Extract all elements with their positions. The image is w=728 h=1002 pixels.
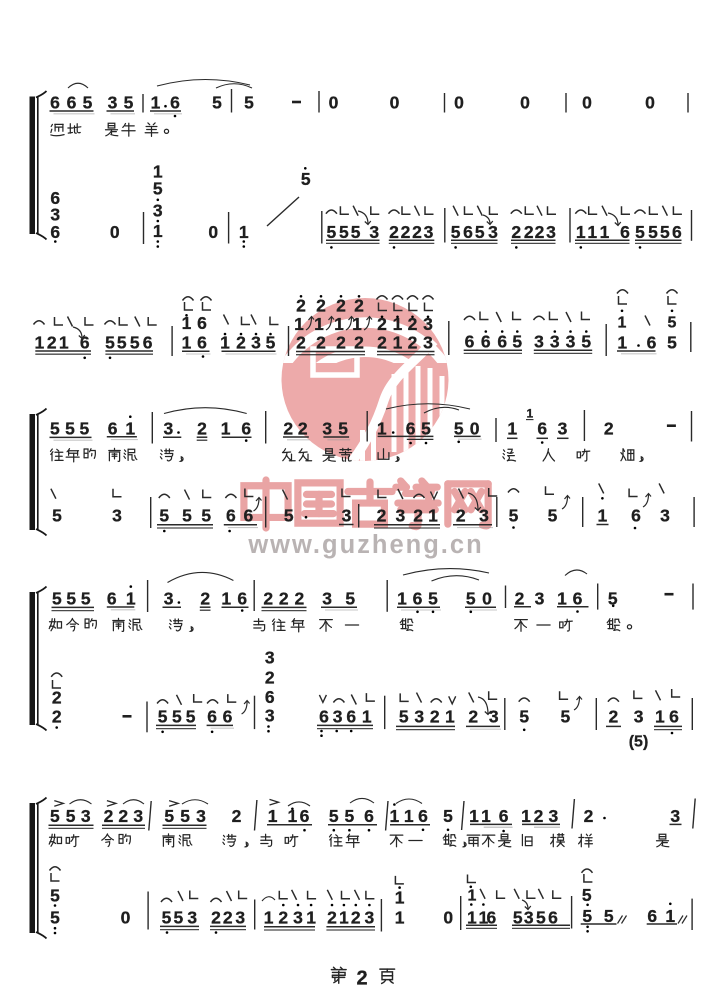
svg-text:5: 5 bbox=[174, 908, 184, 928]
svg-text:1: 1 bbox=[598, 506, 608, 526]
svg-text:1: 1 bbox=[428, 506, 438, 526]
svg-text:1: 1 bbox=[655, 707, 665, 727]
svg-text:1: 1 bbox=[395, 908, 405, 928]
svg-text:2: 2 bbox=[408, 333, 418, 353]
svg-text:5: 5 bbox=[648, 222, 658, 242]
svg-text:1: 1 bbox=[507, 419, 517, 439]
svg-text:3: 3 bbox=[566, 332, 576, 352]
svg-text:1: 1 bbox=[125, 419, 135, 439]
svg-text:0: 0 bbox=[482, 589, 492, 609]
svg-text:1: 1 bbox=[393, 333, 403, 353]
svg-text:3: 3 bbox=[546, 222, 556, 242]
svg-text:1: 1 bbox=[221, 419, 231, 439]
svg-text:1: 1 bbox=[445, 707, 455, 727]
svg-text:3: 3 bbox=[196, 806, 206, 826]
svg-text:5: 5 bbox=[80, 419, 90, 439]
svg-text:2: 2 bbox=[295, 589, 305, 609]
svg-text:0: 0 bbox=[208, 222, 218, 242]
svg-text:3: 3 bbox=[535, 589, 545, 609]
svg-text:1: 1 bbox=[59, 333, 69, 353]
svg-text:1: 1 bbox=[151, 93, 161, 113]
svg-text:3: 3 bbox=[333, 707, 343, 727]
svg-text:3: 3 bbox=[424, 222, 434, 242]
svg-text:6: 6 bbox=[631, 506, 641, 526]
svg-text:5: 5 bbox=[509, 506, 519, 526]
svg-text:5: 5 bbox=[244, 93, 254, 113]
svg-text:6: 6 bbox=[463, 222, 473, 242]
svg-text:2: 2 bbox=[283, 419, 293, 439]
svg-text:5: 5 bbox=[105, 333, 115, 353]
svg-text:3: 3 bbox=[265, 706, 275, 726]
svg-text:6: 6 bbox=[50, 222, 60, 242]
svg-text:2: 2 bbox=[47, 333, 57, 353]
svg-text:2: 2 bbox=[511, 222, 521, 242]
svg-text:1: 1 bbox=[617, 333, 627, 353]
svg-text:5: 5 bbox=[548, 506, 558, 526]
svg-text:6: 6 bbox=[497, 332, 507, 352]
svg-text:0: 0 bbox=[582, 93, 592, 113]
svg-text:1: 1 bbox=[377, 419, 387, 439]
svg-text:3: 3 bbox=[489, 707, 499, 727]
svg-text:6: 6 bbox=[418, 806, 428, 826]
svg-text:5: 5 bbox=[212, 93, 222, 113]
svg-text:3: 3 bbox=[342, 506, 352, 526]
svg-text:5: 5 bbox=[50, 419, 60, 439]
svg-text:2: 2 bbox=[336, 333, 346, 353]
svg-text:6: 6 bbox=[197, 313, 207, 333]
svg-text:1: 1 bbox=[288, 806, 298, 826]
svg-text:5: 5 bbox=[339, 222, 349, 242]
svg-text:6: 6 bbox=[413, 589, 423, 609]
svg-text:6: 6 bbox=[143, 333, 153, 353]
svg-text:5: 5 bbox=[158, 707, 168, 727]
svg-text:2: 2 bbox=[52, 707, 62, 727]
svg-text:6: 6 bbox=[197, 333, 207, 353]
svg-text:3: 3 bbox=[423, 333, 433, 353]
svg-text:6: 6 bbox=[481, 332, 491, 352]
svg-text:6: 6 bbox=[620, 222, 630, 242]
svg-text:5: 5 bbox=[466, 589, 476, 609]
svg-text:1: 1 bbox=[467, 887, 476, 904]
svg-text:1: 1 bbox=[557, 589, 567, 609]
svg-text:5: 5 bbox=[301, 169, 311, 189]
svg-text:2: 2 bbox=[401, 222, 411, 242]
svg-text:3: 3 bbox=[164, 589, 174, 609]
svg-text:5: 5 bbox=[284, 506, 294, 526]
svg-text:2: 2 bbox=[104, 806, 114, 826]
svg-text:1: 1 bbox=[153, 221, 163, 241]
svg-text:6: 6 bbox=[537, 419, 547, 439]
svg-text:2: 2 bbox=[279, 589, 289, 609]
svg-text:5: 5 bbox=[50, 886, 60, 906]
svg-text:1: 1 bbox=[221, 589, 231, 609]
svg-text:0: 0 bbox=[110, 222, 120, 242]
svg-text:3: 3 bbox=[133, 806, 143, 826]
svg-text:5: 5 bbox=[399, 707, 409, 727]
svg-text:2: 2 bbox=[389, 222, 399, 242]
svg-text:6: 6 bbox=[647, 906, 657, 926]
svg-text:6: 6 bbox=[406, 419, 416, 439]
svg-text:5: 5 bbox=[159, 506, 169, 526]
svg-text:6: 6 bbox=[647, 333, 657, 353]
svg-text:2: 2 bbox=[236, 333, 246, 353]
svg-text:1: 1 bbox=[397, 589, 407, 609]
svg-text:5: 5 bbox=[52, 506, 62, 526]
svg-text:6: 6 bbox=[170, 93, 180, 113]
svg-text:5: 5 bbox=[66, 806, 76, 826]
svg-text:3: 3 bbox=[81, 806, 91, 826]
svg-text:6: 6 bbox=[67, 93, 77, 113]
svg-text:2: 2 bbox=[430, 707, 440, 727]
svg-text:2: 2 bbox=[336, 296, 346, 316]
svg-text:5: 5 bbox=[338, 419, 348, 439]
svg-text:3: 3 bbox=[479, 506, 489, 526]
svg-text:3: 3 bbox=[558, 419, 568, 439]
svg-text:1: 1 bbox=[264, 908, 274, 928]
svg-text:3: 3 bbox=[396, 506, 406, 526]
svg-text:5: 5 bbox=[604, 906, 614, 926]
svg-text:1: 1 bbox=[521, 806, 531, 826]
svg-text:3: 3 bbox=[549, 806, 559, 826]
svg-text:2: 2 bbox=[356, 968, 367, 990]
svg-text:6: 6 bbox=[672, 222, 682, 242]
svg-text:6: 6 bbox=[364, 806, 374, 826]
svg-text:2: 2 bbox=[468, 707, 478, 727]
svg-text:2: 2 bbox=[296, 333, 306, 353]
svg-text:5: 5 bbox=[345, 589, 355, 609]
svg-text:2: 2 bbox=[604, 419, 614, 439]
svg-text:6: 6 bbox=[226, 506, 236, 526]
svg-text:3: 3 bbox=[322, 419, 332, 439]
svg-text:5: 5 bbox=[124, 93, 134, 113]
svg-text:3: 3 bbox=[265, 648, 275, 668]
svg-text:1: 1 bbox=[587, 222, 597, 242]
svg-text:5: 5 bbox=[186, 707, 196, 727]
svg-text:3: 3 bbox=[108, 93, 118, 113]
svg-text:1: 1 bbox=[618, 315, 627, 332]
svg-text:5: 5 bbox=[266, 333, 276, 353]
svg-text:5: 5 bbox=[581, 332, 591, 352]
svg-text:5: 5 bbox=[180, 806, 190, 826]
svg-text:2: 2 bbox=[327, 908, 337, 928]
svg-text:3: 3 bbox=[251, 333, 261, 353]
svg-text:3: 3 bbox=[369, 222, 379, 242]
svg-text:3: 3 bbox=[322, 589, 332, 609]
svg-text:2: 2 bbox=[316, 296, 326, 316]
svg-text:5: 5 bbox=[351, 222, 361, 242]
svg-text:5: 5 bbox=[201, 506, 211, 526]
svg-text:2: 2 bbox=[232, 806, 242, 826]
svg-text:5: 5 bbox=[66, 589, 76, 609]
svg-text:5: 5 bbox=[162, 908, 172, 928]
svg-text:3: 3 bbox=[660, 506, 670, 526]
svg-text:2: 2 bbox=[263, 589, 273, 609]
svg-text:6: 6 bbox=[107, 589, 117, 609]
svg-text:1: 1 bbox=[314, 314, 324, 334]
svg-text:5: 5 bbox=[582, 906, 592, 926]
svg-text:1: 1 bbox=[35, 333, 45, 353]
svg-text:3: 3 bbox=[153, 200, 163, 220]
svg-text:6: 6 bbox=[50, 93, 60, 113]
svg-text:5: 5 bbox=[660, 222, 670, 242]
svg-text:6: 6 bbox=[465, 332, 475, 352]
svg-text:1: 1 bbox=[352, 314, 362, 334]
svg-text:3: 3 bbox=[414, 707, 424, 727]
svg-text:1: 1 bbox=[576, 222, 586, 242]
svg-text:5: 5 bbox=[81, 589, 91, 609]
svg-text:5: 5 bbox=[451, 222, 461, 242]
svg-text:5: 5 bbox=[50, 908, 60, 928]
svg-text:6: 6 bbox=[108, 419, 118, 439]
svg-text:1: 1 bbox=[220, 333, 230, 353]
svg-text:2: 2 bbox=[298, 419, 308, 439]
svg-text:2: 2 bbox=[354, 296, 364, 316]
svg-text:5: 5 bbox=[182, 506, 192, 526]
svg-text:6: 6 bbox=[346, 707, 356, 727]
svg-text:2: 2 bbox=[515, 589, 525, 609]
svg-text:5: 5 bbox=[83, 93, 93, 113]
svg-text:0: 0 bbox=[645, 93, 655, 113]
svg-text:1: 1 bbox=[339, 908, 349, 928]
svg-text:1: 1 bbox=[268, 806, 278, 826]
svg-text:2: 2 bbox=[52, 688, 62, 708]
svg-text:1: 1 bbox=[395, 887, 405, 907]
svg-text:5: 5 bbox=[52, 589, 62, 609]
svg-text:0: 0 bbox=[454, 93, 464, 113]
svg-text:3: 3 bbox=[112, 506, 122, 526]
svg-text:2: 2 bbox=[412, 222, 422, 242]
svg-text:5: 5 bbox=[668, 315, 677, 332]
svg-text:5: 5 bbox=[443, 806, 453, 826]
svg-text:2: 2 bbox=[296, 296, 306, 316]
svg-text:5: 5 bbox=[667, 333, 677, 353]
svg-text:6: 6 bbox=[319, 707, 329, 727]
svg-text:1: 1 bbox=[469, 806, 479, 826]
svg-text:1: 1 bbox=[362, 707, 372, 727]
svg-text:5: 5 bbox=[428, 589, 438, 609]
svg-text:2: 2 bbox=[354, 333, 364, 353]
svg-text:2: 2 bbox=[584, 806, 594, 826]
svg-text:2: 2 bbox=[211, 908, 221, 928]
svg-text:2: 2 bbox=[377, 333, 387, 353]
svg-text:1: 1 bbox=[239, 222, 249, 242]
svg-text:1: 1 bbox=[306, 908, 316, 928]
svg-text:5: 5 bbox=[582, 885, 592, 905]
svg-text:2: 2 bbox=[351, 908, 361, 928]
svg-text:(5): (5) bbox=[629, 734, 649, 751]
svg-text:0: 0 bbox=[390, 93, 400, 113]
svg-text:1: 1 bbox=[334, 314, 344, 334]
svg-text:2: 2 bbox=[456, 506, 466, 526]
svg-text:1: 1 bbox=[182, 313, 192, 333]
svg-text:www.guzheng.cn: www.guzheng.cn bbox=[247, 531, 483, 559]
svg-text:1: 1 bbox=[390, 806, 400, 826]
svg-text:6: 6 bbox=[241, 419, 251, 439]
svg-text:2: 2 bbox=[118, 806, 128, 826]
svg-text:1: 1 bbox=[665, 906, 675, 926]
svg-text:2: 2 bbox=[377, 506, 387, 526]
svg-text:3: 3 bbox=[365, 908, 375, 928]
svg-text:2: 2 bbox=[534, 806, 544, 826]
svg-text:5: 5 bbox=[153, 179, 163, 199]
svg-text:1: 1 bbox=[526, 407, 533, 421]
svg-text:2: 2 bbox=[265, 667, 275, 687]
svg-text:2: 2 bbox=[200, 589, 210, 609]
svg-text:5: 5 bbox=[65, 419, 75, 439]
svg-text:6: 6 bbox=[244, 506, 254, 526]
svg-text:2: 2 bbox=[316, 333, 326, 353]
svg-text:3: 3 bbox=[187, 908, 197, 928]
svg-text:0: 0 bbox=[443, 908, 453, 928]
svg-text:1: 1 bbox=[600, 222, 610, 242]
svg-text:2: 2 bbox=[197, 419, 207, 439]
svg-text:5: 5 bbox=[519, 707, 529, 727]
svg-text:0: 0 bbox=[121, 908, 131, 928]
svg-text:0: 0 bbox=[329, 93, 339, 113]
svg-text:3: 3 bbox=[534, 332, 544, 352]
svg-text:5: 5 bbox=[421, 419, 431, 439]
svg-text:0: 0 bbox=[520, 93, 530, 113]
svg-text:6: 6 bbox=[265, 687, 275, 707]
svg-text:1: 1 bbox=[294, 314, 304, 334]
svg-text:3: 3 bbox=[293, 908, 303, 928]
svg-text:1: 1 bbox=[182, 333, 192, 353]
svg-text:3: 3 bbox=[235, 908, 245, 928]
svg-text:6: 6 bbox=[237, 589, 247, 609]
svg-text:5: 5 bbox=[561, 707, 571, 727]
svg-text:3: 3 bbox=[164, 419, 174, 439]
svg-text:5: 5 bbox=[172, 707, 182, 727]
svg-text:2: 2 bbox=[413, 506, 423, 526]
svg-text:2: 2 bbox=[278, 908, 288, 928]
svg-text:6: 6 bbox=[300, 806, 310, 826]
svg-text:5: 5 bbox=[329, 806, 339, 826]
svg-text:3: 3 bbox=[634, 707, 644, 727]
svg-text:5: 5 bbox=[327, 222, 337, 242]
svg-text:6: 6 bbox=[223, 707, 233, 727]
svg-text:3: 3 bbox=[670, 806, 680, 826]
svg-text:5: 5 bbox=[475, 222, 485, 242]
svg-text:3: 3 bbox=[550, 332, 560, 352]
svg-text:0: 0 bbox=[470, 419, 480, 439]
svg-text:5: 5 bbox=[454, 419, 464, 439]
svg-text:5: 5 bbox=[635, 222, 645, 242]
svg-text:6: 6 bbox=[573, 589, 583, 609]
svg-text:5: 5 bbox=[130, 333, 140, 353]
svg-text:6: 6 bbox=[207, 707, 217, 727]
svg-text:2: 2 bbox=[524, 222, 534, 242]
svg-text:5: 5 bbox=[512, 332, 522, 352]
svg-text:5: 5 bbox=[50, 806, 60, 826]
svg-text:1: 1 bbox=[404, 806, 414, 826]
svg-text:1: 1 bbox=[481, 806, 491, 826]
svg-text:6: 6 bbox=[669, 707, 679, 727]
svg-text:2: 2 bbox=[609, 707, 619, 727]
svg-text:2: 2 bbox=[535, 222, 545, 242]
svg-text:5: 5 bbox=[164, 806, 174, 826]
svg-text:6: 6 bbox=[499, 806, 509, 826]
svg-text:5: 5 bbox=[345, 806, 355, 826]
svg-text:2: 2 bbox=[223, 908, 233, 928]
svg-text:1: 1 bbox=[126, 589, 136, 609]
svg-text:5: 5 bbox=[117, 333, 127, 353]
